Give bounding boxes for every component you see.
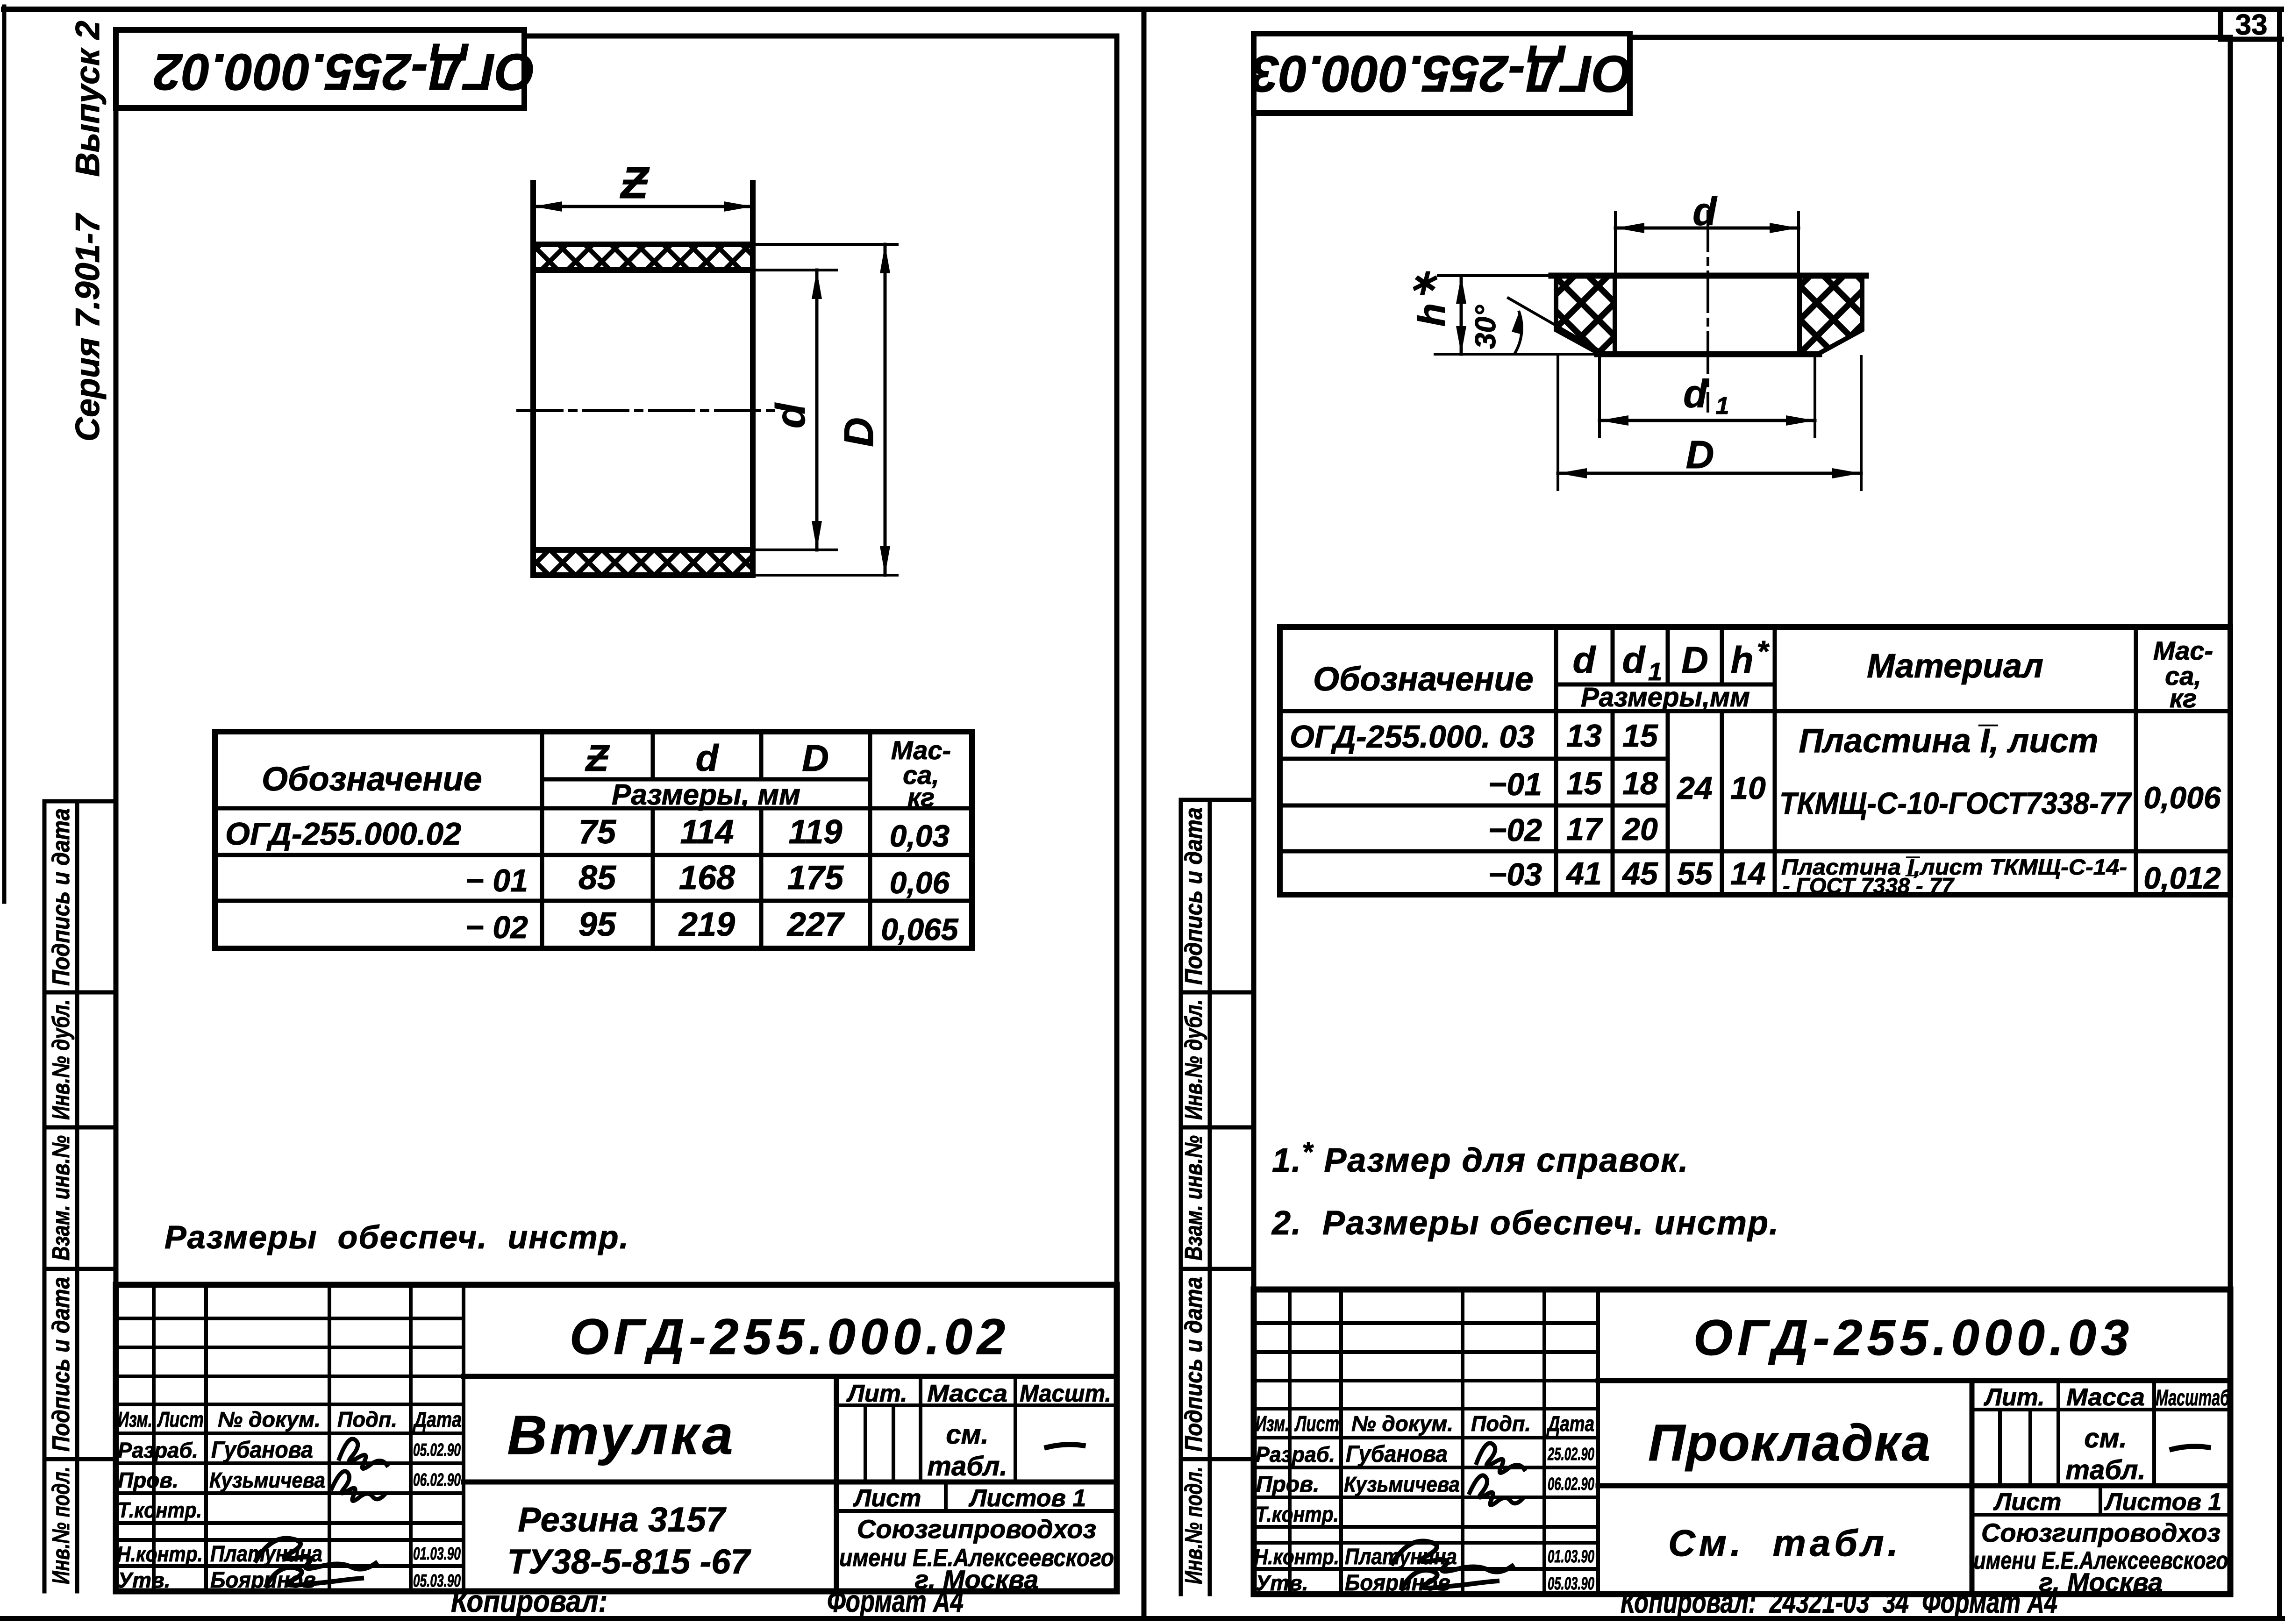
svg-text:ТКМЩ-С-10-ГОСТ7338-77: ТКМЩ-С-10-ГОСТ7338-77 xyxy=(1779,786,2132,820)
svg-text:Ƶ: Ƶ xyxy=(620,158,650,208)
svg-text:Дата: Дата xyxy=(413,1407,462,1432)
svg-text:10: 10 xyxy=(1730,770,1766,806)
svg-text:2. Размеры обеспеч. инстр.: 2. Размеры обеспеч. инстр. xyxy=(1271,1204,1779,1242)
svg-text:13: 13 xyxy=(1566,718,1602,754)
svg-text:Взам. инв.№: Взам. инв.№ xyxy=(1180,1135,1207,1261)
svg-text:ОГД-255.000. 03: ОГД-255.000. 03 xyxy=(1290,719,1535,755)
svg-text:17: 17 xyxy=(1566,812,1603,847)
svg-text:d: d xyxy=(767,402,814,428)
svg-text:85: 85 xyxy=(578,859,616,897)
svg-text:Подп.: Подп. xyxy=(1471,1411,1531,1436)
svg-text:Инв.№ подл.: Инв.№ подл. xyxy=(48,1467,75,1584)
svg-text:Подпись и дата: Подпись и дата xyxy=(48,808,75,986)
svg-text:45: 45 xyxy=(1621,856,1658,891)
svg-text:Союзгипроводхоз: Союзгипроводхоз xyxy=(1981,1518,2221,1547)
svg-text:25.02.90: 25.02.90 xyxy=(1547,1445,1594,1464)
svg-text:1: 1 xyxy=(1716,392,1729,420)
svg-text:см.: см. xyxy=(2084,1423,2127,1453)
svg-text:Размеры,мм: Размеры,мм xyxy=(1581,682,1750,712)
svg-text:0,06: 0,06 xyxy=(890,865,950,900)
svg-text:d: d xyxy=(1692,190,1717,234)
svg-text:Подпись и дата: Подпись и дата xyxy=(48,1277,75,1452)
svg-text:Копировал:: Копировал: xyxy=(451,1584,607,1618)
svg-text:Инв.№ дубл.: Инв.№ дубл. xyxy=(1180,999,1207,1120)
svg-text:Масса: Масса xyxy=(2066,1384,2145,1411)
svg-text:ОГД-255.000.02: ОГД-255.000.02 xyxy=(154,43,536,100)
svg-text:Серия 7.901-7 Выпуск 2: Серия 7.901-7 Выпуск 2 xyxy=(69,21,107,442)
svg-text:41: 41 xyxy=(1565,856,1602,891)
svg-text:75: 75 xyxy=(578,813,616,851)
svg-text:− 02: − 02 xyxy=(465,910,528,945)
svg-text:Лист: Лист xyxy=(1294,1411,1339,1436)
svg-text:ОГД-255.000.02: ОГД-255.000.02 xyxy=(570,1308,1010,1365)
svg-text:Подпись и дата: Подпись и дата xyxy=(1180,807,1207,985)
svg-text:0,012: 0,012 xyxy=(2143,861,2221,895)
svg-text:Масса: Масса xyxy=(927,1380,1007,1407)
svg-text:г. Москва: г. Москва xyxy=(2039,1567,2163,1597)
svg-text:168: 168 xyxy=(679,859,735,897)
svg-text:Подпись и дата: Подпись и дата xyxy=(1180,1277,1207,1452)
svg-text:*: * xyxy=(1757,634,1770,668)
svg-text:Н.контр.: Н.контр. xyxy=(1254,1545,1339,1569)
svg-text:D: D xyxy=(802,737,829,779)
svg-text:15: 15 xyxy=(1622,718,1658,754)
svg-text:219: 219 xyxy=(678,906,735,943)
svg-text:Взам. инв.№: Взам. инв.№ xyxy=(48,1135,75,1261)
svg-text:01.03.90: 01.03.90 xyxy=(1548,1547,1594,1567)
svg-text:−03: −03 xyxy=(1488,857,1542,892)
svg-text:0,03: 0,03 xyxy=(890,819,950,853)
svg-text:Разраб.: Разраб. xyxy=(1256,1442,1335,1467)
svg-text:Масшт.: Масшт. xyxy=(1020,1380,1111,1407)
svg-text:01.03.90: 01.03.90 xyxy=(413,1544,461,1564)
svg-text:Инв.№ подл.: Инв.№ подл. xyxy=(1180,1467,1207,1584)
svg-text:Размеры, мм: Размеры, мм xyxy=(612,779,800,811)
svg-text:227: 227 xyxy=(786,906,845,943)
svg-text:24: 24 xyxy=(1676,770,1713,806)
svg-text:табл.: табл. xyxy=(927,1451,1007,1482)
svg-text:d: d xyxy=(1683,372,1708,416)
svg-text:Лист: Лист xyxy=(1993,1489,2062,1516)
svg-text:Платунина: Платунина xyxy=(1345,1545,1457,1569)
svg-text:Материал: Материал xyxy=(1867,648,2043,685)
svg-text:06.02.90: 06.02.90 xyxy=(413,1470,461,1490)
svg-text:Пров.: Пров. xyxy=(1256,1472,1320,1497)
svg-text:D: D xyxy=(835,417,882,447)
svg-text:Изм.: Изм. xyxy=(1256,1411,1289,1436)
svg-text:Ƶ: Ƶ xyxy=(585,737,610,779)
svg-text:ОГД-255.000.03: ОГД-255.000.03 xyxy=(1693,1309,2134,1366)
svg-text:Т.контр.: Т.контр. xyxy=(118,1498,202,1522)
svg-text:0,065: 0,065 xyxy=(881,912,958,947)
svg-text:Копировал: 24321-03 34 Форм: Копировал: 24321-03 34 Формат А4 xyxy=(1621,1585,2057,1619)
svg-text:d: d xyxy=(1573,639,1597,681)
svg-text:Т.контр.: Т.контр. xyxy=(1256,1502,1339,1526)
svg-text:∗: ∗ xyxy=(1407,263,1437,302)
svg-text:Размеры обеспеч. инстр.: Размеры обеспеч. инстр. xyxy=(164,1219,629,1255)
svg-text:D: D xyxy=(1681,639,1708,681)
svg-text:−02: −02 xyxy=(1488,812,1542,848)
svg-text:Масштаб: Масштаб xyxy=(2156,1386,2230,1410)
svg-text:1.* Размер для справок.: 1.* Размер для справок. xyxy=(1272,1136,1689,1179)
svg-text:Формат А4: Формат А4 xyxy=(827,1584,964,1618)
svg-text:см.: см. xyxy=(946,1419,988,1450)
svg-text:Лит.: Лит. xyxy=(1983,1384,2045,1411)
svg-text:Утв.: Утв. xyxy=(118,1568,171,1592)
svg-text:30°: 30° xyxy=(1470,305,1502,349)
svg-text:ТУ38-5-815 -67: ТУ38-5-815 -67 xyxy=(507,1542,751,1581)
svg-text:33: 33 xyxy=(2235,9,2268,41)
svg-text:№ докум.: № докум. xyxy=(218,1407,321,1432)
svg-text:h: h xyxy=(1411,303,1453,327)
svg-text:кг: кг xyxy=(2170,684,2197,713)
svg-text:Утв.: Утв. xyxy=(1256,1571,1308,1595)
svg-text:Листов 1: Листов 1 xyxy=(968,1485,1086,1512)
svg-text:Н.контр.: Н.контр. xyxy=(117,1542,203,1566)
svg-text:Разраб.: Разраб. xyxy=(118,1438,198,1462)
svg-text:Пластина I̅, лист: Пластина I̅, лист xyxy=(1799,722,2098,760)
svg-text:18: 18 xyxy=(1622,766,1658,801)
svg-text:Прокладка: Прокладка xyxy=(1648,1414,1931,1472)
svg-text:−01: −01 xyxy=(1488,767,1542,802)
svg-text:Листов 1: Листов 1 xyxy=(2104,1489,2222,1516)
svg-text:- ГОСТ 7338̅ - 77: - ГОСТ 7338̅ - 77 xyxy=(1783,873,1955,898)
svg-text:14: 14 xyxy=(1730,856,1766,891)
svg-text:d: d xyxy=(696,737,720,779)
svg-text:Кузьмичева: Кузьмичева xyxy=(1344,1472,1460,1496)
svg-text:Губанова: Губанова xyxy=(1346,1441,1448,1467)
svg-text:табл.: табл. xyxy=(2065,1455,2145,1485)
svg-text:Дата: Дата xyxy=(1546,1411,1594,1436)
svg-text:Инв.№ дубл.: Инв.№ дубл. xyxy=(48,999,75,1120)
svg-text:05.02.90: 05.02.90 xyxy=(413,1440,461,1460)
svg-text:Изм.: Изм. xyxy=(118,1407,152,1432)
svg-text:кг: кг xyxy=(907,783,935,812)
svg-text:119: 119 xyxy=(789,813,843,851)
svg-text:Лит.: Лит. xyxy=(846,1380,907,1407)
svg-text:См. табл.: См. табл. xyxy=(1668,1522,1902,1564)
svg-text:Лист: Лист xyxy=(853,1485,921,1512)
svg-text:55: 55 xyxy=(1677,856,1713,891)
svg-text:06.02.90: 06.02.90 xyxy=(1548,1474,1594,1494)
svg-text:Резина 3157: Резина 3157 xyxy=(518,1500,727,1539)
svg-text:20: 20 xyxy=(1621,812,1658,847)
svg-text:h: h xyxy=(1731,639,1754,681)
svg-text:114: 114 xyxy=(680,813,734,851)
svg-text:№ докум.: № докум. xyxy=(1351,1411,1453,1436)
svg-text:Подп.: Подп. xyxy=(337,1407,397,1432)
svg-text:Губанова: Губанова xyxy=(211,1437,313,1463)
svg-text:0,006: 0,006 xyxy=(2143,780,2221,815)
svg-text:ОГД-255.000.02: ОГД-255.000.02 xyxy=(225,816,461,852)
svg-text:Лист: Лист xyxy=(157,1407,204,1432)
svg-text:15: 15 xyxy=(1566,766,1602,801)
svg-text:Обозначение: Обозначение xyxy=(1313,661,1534,698)
svg-text:Обозначение: Обозначение xyxy=(262,761,482,798)
svg-text:Втулка: Втулка xyxy=(507,1404,735,1466)
svg-text:05.03.90: 05.03.90 xyxy=(1548,1574,1594,1594)
svg-text:− 01: − 01 xyxy=(465,863,528,898)
svg-text:1: 1 xyxy=(1648,658,1662,686)
svg-text:ОГД-255.000.03: ОГД-255.000.03 xyxy=(1251,45,1633,102)
svg-text:175: 175 xyxy=(787,859,844,897)
svg-text:Кузьмичева: Кузьмичева xyxy=(209,1468,325,1492)
svg-text:D: D xyxy=(1686,433,1714,477)
svg-text:Союзгипроводхоз: Союзгипроводхоз xyxy=(857,1514,1096,1544)
svg-text:Пров.: Пров. xyxy=(118,1468,179,1492)
svg-text:d: d xyxy=(1622,639,1646,681)
svg-text:95: 95 xyxy=(578,906,616,943)
